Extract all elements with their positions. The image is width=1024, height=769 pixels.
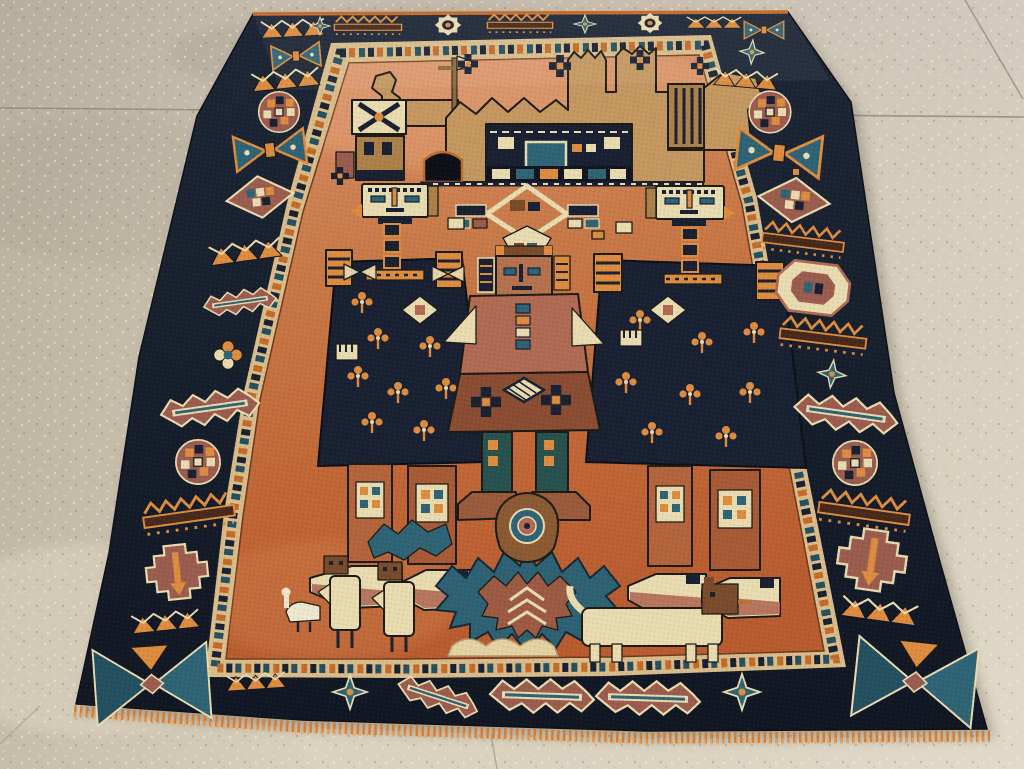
rug-photo-scene [0, 0, 1024, 769]
light-sheen [253, 12, 830, 90]
photo-of-rug-on-floor [0, 0, 1024, 769]
